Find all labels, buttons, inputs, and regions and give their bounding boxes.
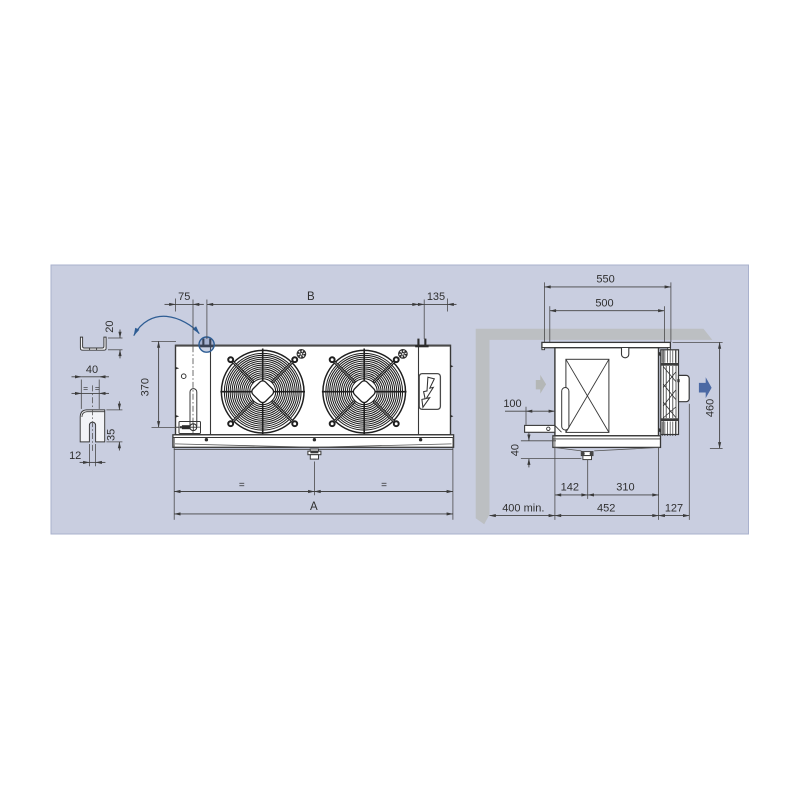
svg-text:100: 100 [503,398,521,410]
svg-text:400 min.: 400 min. [502,502,544,514]
svg-text:A: A [310,501,318,513]
svg-text:B: B [307,291,315,303]
svg-text:142: 142 [561,482,579,494]
svg-text:=: = [95,383,100,393]
svg-text:500: 500 [595,298,613,310]
svg-text:35: 35 [105,429,117,441]
svg-text:40: 40 [509,444,521,456]
svg-text:20: 20 [104,320,116,332]
svg-text:310: 310 [616,482,634,494]
svg-text:75: 75 [178,291,190,303]
svg-text:370: 370 [140,378,152,396]
svg-text:452: 452 [597,502,615,514]
svg-text:135: 135 [427,291,445,303]
svg-text:=: = [83,383,88,393]
svg-text:12: 12 [69,450,81,462]
svg-text:=: = [381,480,387,491]
svg-text:550: 550 [596,274,614,286]
svg-text:=: = [239,480,245,491]
svg-text:460: 460 [705,399,717,417]
svg-text:127: 127 [665,502,683,514]
svg-text:40: 40 [86,364,98,376]
